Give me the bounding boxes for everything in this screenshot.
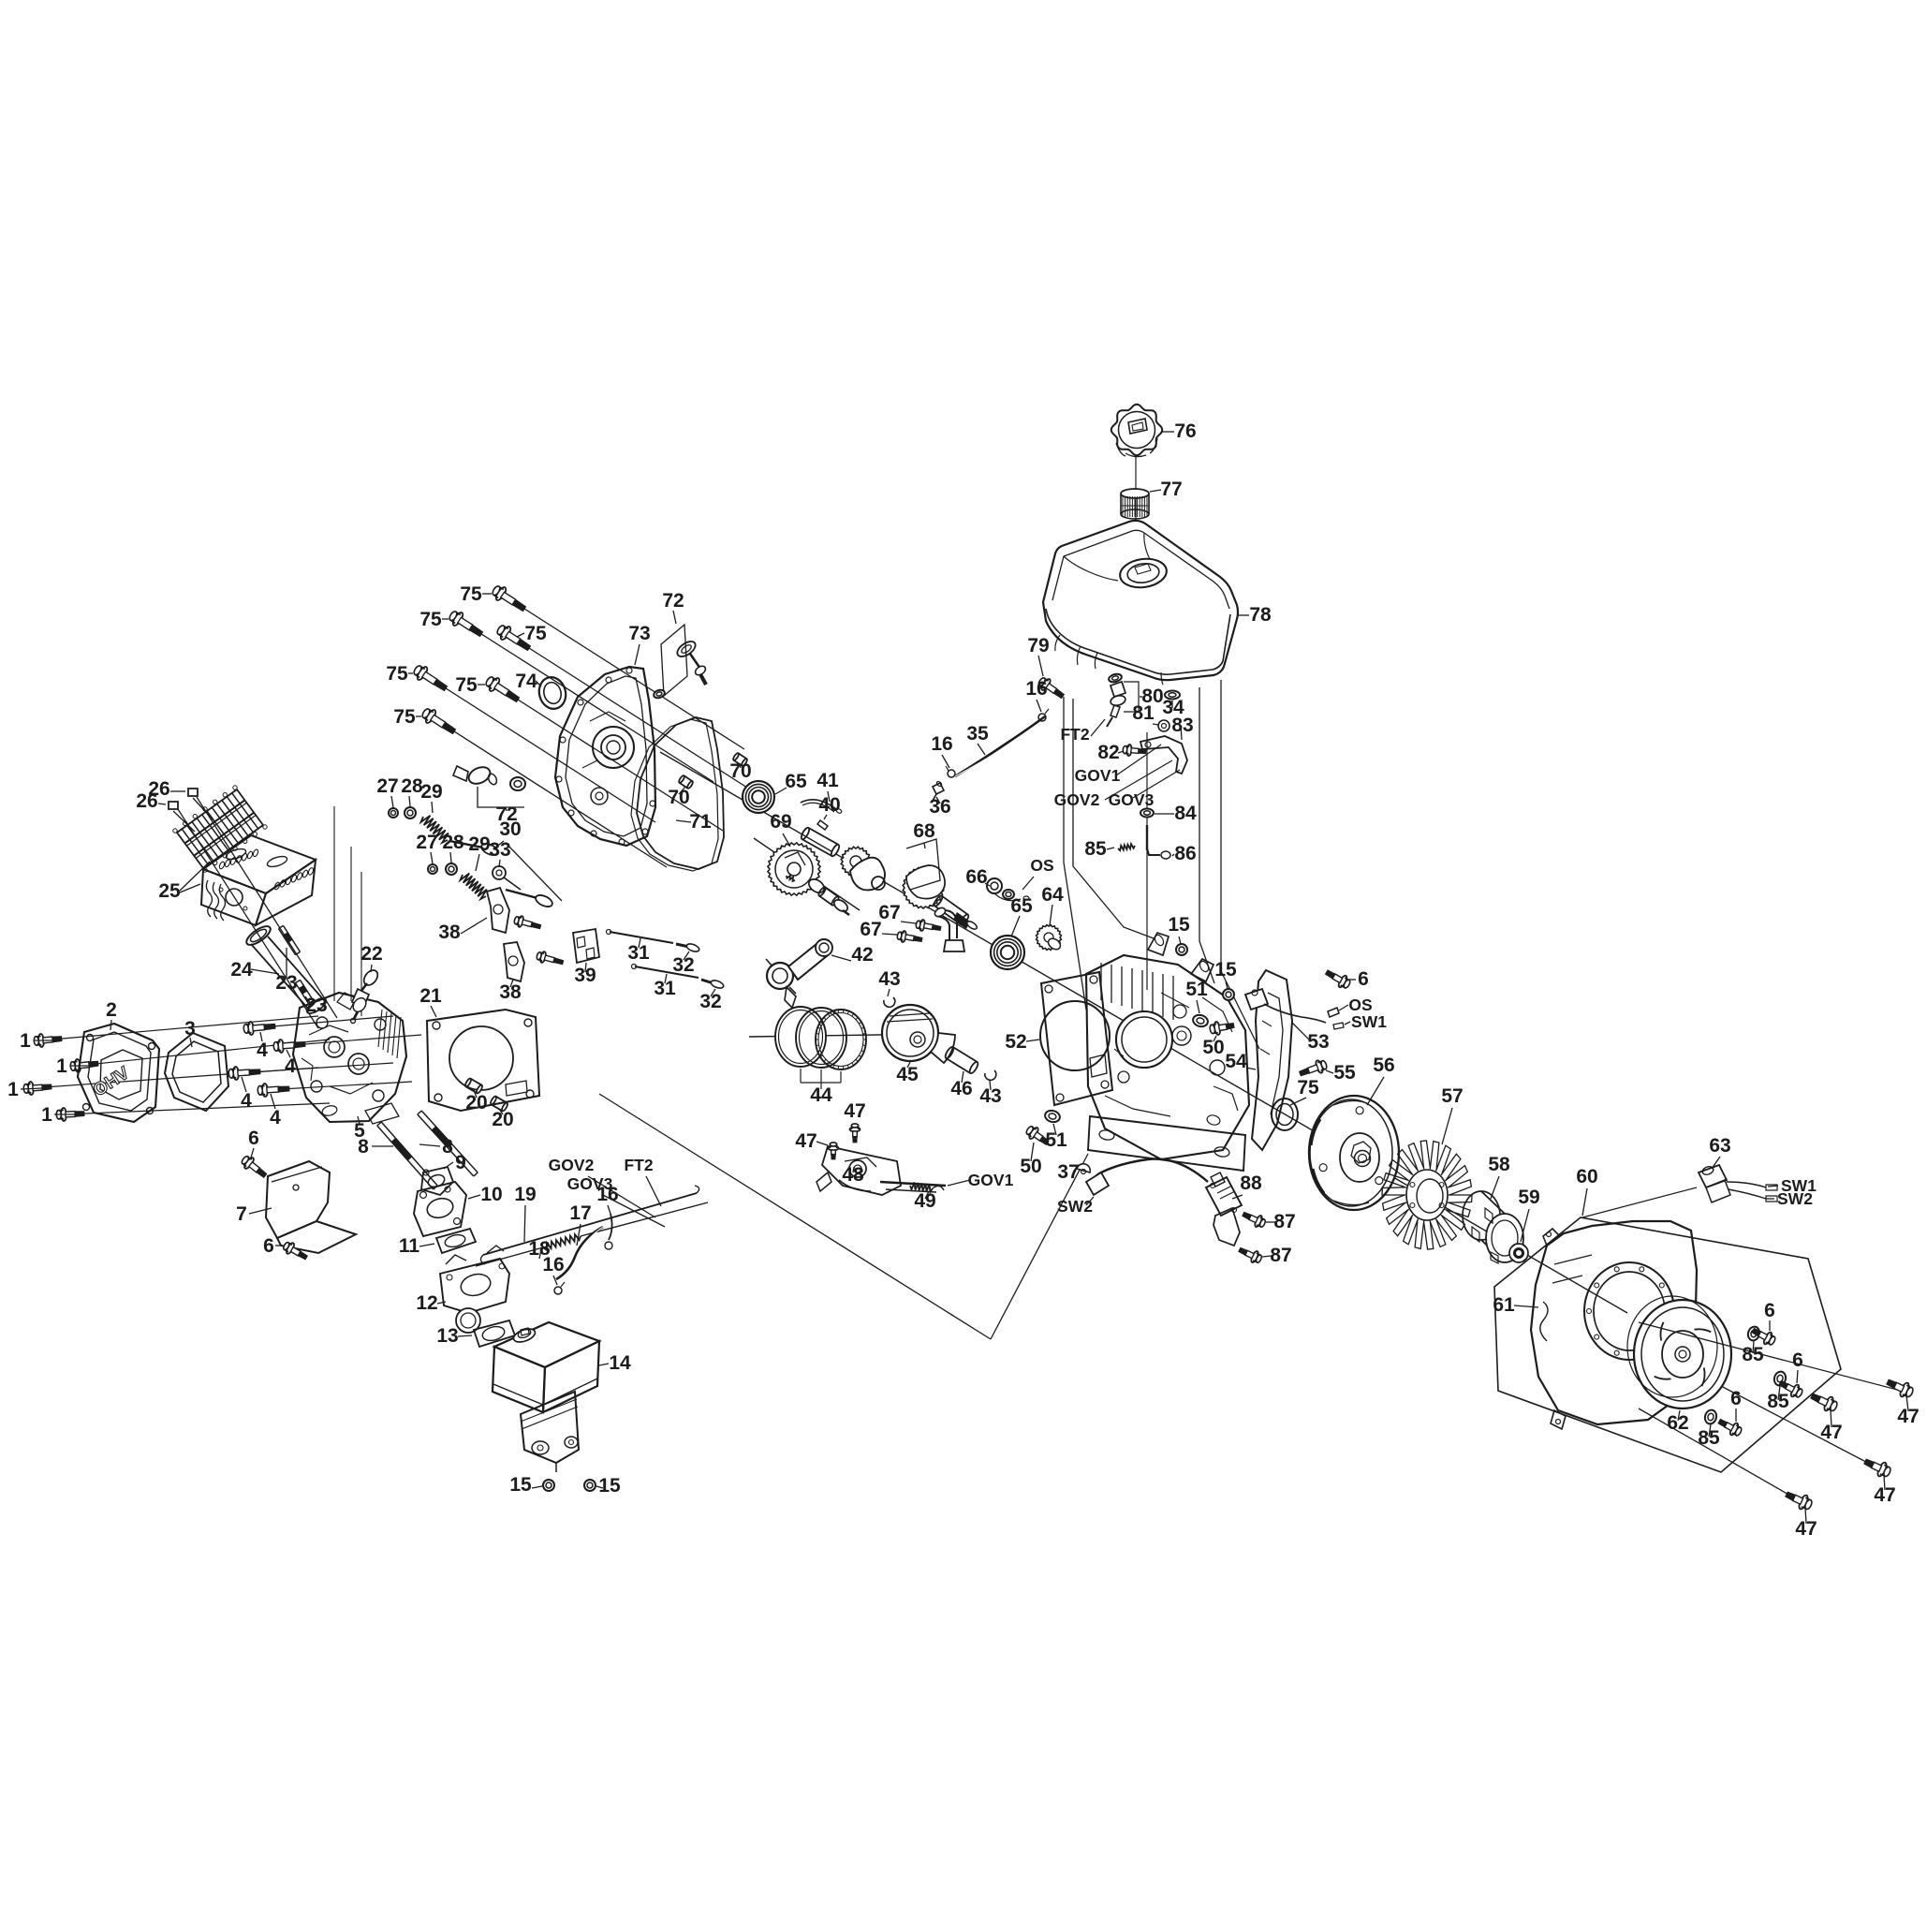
svg-text:65: 65	[785, 771, 807, 792]
svg-text:47: 47	[844, 1100, 865, 1122]
svg-text:70: 70	[668, 787, 689, 808]
svg-text:36: 36	[929, 796, 950, 818]
svg-text:74: 74	[515, 671, 537, 692]
svg-text:16: 16	[596, 1184, 618, 1205]
svg-text:20: 20	[465, 1092, 487, 1113]
svg-text:72: 72	[495, 804, 517, 825]
svg-text:63: 63	[1709, 1135, 1730, 1157]
svg-text:13: 13	[436, 1325, 458, 1347]
svg-text:64: 64	[1041, 884, 1064, 906]
svg-text:58: 58	[1488, 1154, 1510, 1175]
svg-text:33: 33	[489, 839, 510, 861]
svg-text:22: 22	[360, 943, 382, 965]
svg-text:48: 48	[842, 1164, 864, 1186]
svg-text:6: 6	[1764, 1300, 1775, 1321]
svg-text:17: 17	[569, 1202, 591, 1224]
svg-text:47: 47	[1795, 1518, 1817, 1540]
svg-text:SW2: SW2	[1777, 1189, 1813, 1208]
svg-text:52: 52	[1005, 1031, 1026, 1053]
svg-text:4: 4	[257, 1040, 268, 1061]
svg-text:16: 16	[1025, 678, 1047, 700]
svg-text:79: 79	[1027, 635, 1049, 656]
svg-text:19: 19	[514, 1184, 536, 1205]
svg-text:75: 75	[455, 674, 478, 696]
svg-text:OS: OS	[1348, 995, 1372, 1014]
svg-text:4: 4	[241, 1090, 252, 1112]
svg-text:75: 75	[419, 609, 442, 630]
svg-text:88: 88	[1240, 1172, 1262, 1194]
svg-text:FT2: FT2	[1060, 725, 1089, 744]
svg-text:12: 12	[416, 1292, 437, 1314]
svg-text:71: 71	[689, 811, 712, 833]
svg-text:60: 60	[1576, 1166, 1597, 1187]
svg-text:21: 21	[419, 985, 442, 1007]
svg-text:49: 49	[914, 1190, 935, 1212]
svg-text:59: 59	[1518, 1187, 1539, 1208]
svg-text:6: 6	[1730, 1388, 1742, 1409]
svg-text:SW2: SW2	[1057, 1197, 1093, 1216]
svg-text:14: 14	[609, 1352, 631, 1374]
svg-text:4: 4	[270, 1107, 281, 1128]
svg-text:35: 35	[966, 723, 989, 745]
svg-text:75: 75	[386, 663, 408, 685]
svg-text:85: 85	[1084, 838, 1107, 860]
svg-text:GOV2: GOV2	[1054, 790, 1100, 809]
svg-text:15: 15	[1168, 914, 1190, 936]
svg-text:75: 75	[393, 706, 416, 728]
svg-text:11: 11	[399, 1235, 420, 1257]
svg-text:37: 37	[1057, 1161, 1079, 1183]
svg-text:OS: OS	[1030, 856, 1053, 875]
svg-text:32: 32	[672, 954, 694, 976]
svg-text:3: 3	[184, 1018, 196, 1040]
svg-text:84: 84	[1174, 803, 1197, 824]
svg-text:9: 9	[455, 1152, 466, 1173]
svg-text:38: 38	[499, 981, 522, 1003]
svg-text:16: 16	[931, 733, 952, 755]
svg-text:32: 32	[699, 991, 721, 1012]
svg-text:81: 81	[1132, 702, 1155, 724]
svg-text:29: 29	[420, 781, 442, 803]
svg-text:75: 75	[524, 623, 547, 644]
svg-text:42: 42	[851, 944, 873, 966]
svg-text:56: 56	[1373, 1054, 1394, 1076]
svg-text:6: 6	[1358, 968, 1369, 990]
svg-text:20: 20	[492, 1109, 513, 1130]
svg-text:75: 75	[1297, 1077, 1319, 1099]
svg-text:FT2: FT2	[624, 1156, 653, 1174]
svg-text:61: 61	[1493, 1294, 1515, 1316]
svg-text:85: 85	[1698, 1427, 1720, 1449]
svg-text:6: 6	[248, 1128, 259, 1149]
svg-text:25: 25	[158, 880, 181, 902]
svg-text:2: 2	[106, 999, 117, 1021]
svg-text:29: 29	[468, 833, 490, 855]
svg-text:54: 54	[1225, 1051, 1247, 1072]
svg-text:73: 73	[628, 623, 650, 644]
svg-text:66: 66	[965, 866, 987, 888]
svg-text:15: 15	[598, 1475, 621, 1497]
svg-text:77: 77	[1160, 479, 1182, 500]
svg-text:69: 69	[770, 811, 791, 833]
svg-text:50: 50	[1202, 1037, 1224, 1058]
svg-text:16: 16	[542, 1254, 564, 1276]
svg-text:67: 67	[878, 902, 900, 923]
svg-text:GOV1: GOV1	[968, 1171, 1014, 1189]
svg-text:27: 27	[376, 775, 398, 797]
svg-text:68: 68	[913, 820, 935, 842]
svg-text:15: 15	[1214, 959, 1237, 981]
svg-text:72: 72	[662, 590, 684, 612]
svg-text:23: 23	[305, 995, 327, 1016]
svg-text:51: 51	[1045, 1129, 1067, 1151]
svg-text:1: 1	[7, 1079, 19, 1100]
svg-text:SW1: SW1	[1351, 1012, 1387, 1031]
svg-text:44: 44	[810, 1084, 832, 1106]
svg-text:47: 47	[795, 1130, 816, 1152]
svg-text:1: 1	[20, 1030, 31, 1052]
svg-text:15: 15	[509, 1474, 532, 1496]
svg-text:87: 87	[1273, 1211, 1295, 1232]
svg-text:83: 83	[1171, 715, 1193, 736]
svg-text:10: 10	[480, 1184, 502, 1205]
svg-text:26: 26	[136, 790, 157, 812]
svg-text:38: 38	[438, 922, 461, 943]
svg-text:78: 78	[1249, 604, 1272, 626]
svg-text:GOV2: GOV2	[549, 1156, 595, 1174]
svg-text:7: 7	[236, 1203, 247, 1225]
svg-text:67: 67	[860, 919, 881, 940]
svg-text:24: 24	[230, 959, 253, 981]
svg-text:1: 1	[56, 1055, 67, 1077]
svg-text:41: 41	[816, 770, 839, 791]
svg-text:8: 8	[442, 1136, 453, 1158]
svg-text:1: 1	[41, 1104, 52, 1126]
svg-text:47: 47	[1897, 1406, 1919, 1427]
svg-text:47: 47	[1874, 1484, 1895, 1506]
svg-text:43: 43	[878, 968, 900, 990]
svg-text:55: 55	[1333, 1062, 1356, 1084]
svg-text:40: 40	[818, 794, 840, 816]
svg-text:6: 6	[263, 1235, 274, 1257]
svg-text:86: 86	[1174, 843, 1196, 864]
svg-text:GOV1: GOV1	[1075, 766, 1121, 785]
svg-text:70: 70	[729, 760, 751, 782]
svg-text:8: 8	[358, 1136, 369, 1158]
svg-text:82: 82	[1097, 742, 1119, 763]
svg-text:57: 57	[1441, 1085, 1463, 1107]
svg-text:76: 76	[1174, 420, 1196, 442]
svg-text:53: 53	[1307, 1031, 1329, 1053]
svg-text:28: 28	[442, 832, 464, 853]
svg-text:87: 87	[1270, 1245, 1291, 1266]
svg-text:47: 47	[1820, 1422, 1842, 1443]
svg-text:27: 27	[416, 832, 437, 853]
svg-text:6: 6	[1792, 1349, 1803, 1371]
svg-text:85: 85	[1767, 1391, 1789, 1412]
svg-text:51: 51	[1185, 979, 1208, 1000]
svg-text:75: 75	[460, 583, 482, 605]
